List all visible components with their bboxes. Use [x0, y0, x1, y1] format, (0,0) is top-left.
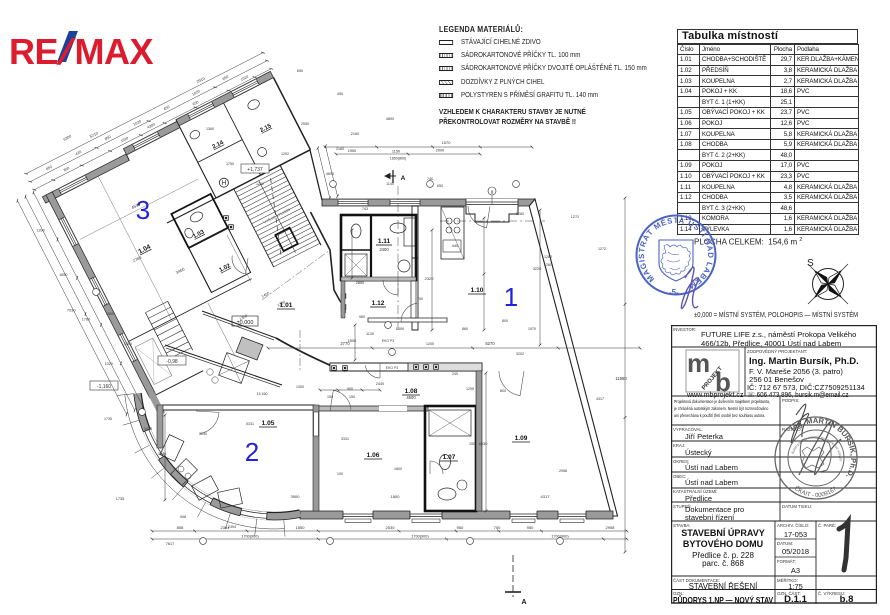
svg-text:2000: 2000	[436, 149, 444, 153]
svg-text:908: 908	[180, 515, 186, 519]
svg-text:a: a	[491, 190, 494, 196]
svg-text:1950: 1950	[348, 149, 356, 153]
svg-text:100: 100	[337, 472, 343, 476]
svg-text:1.06: 1.06	[367, 452, 380, 459]
svg-text:2784: 2784	[132, 254, 143, 263]
svg-text:1000: 1000	[396, 327, 404, 331]
svg-text:1280: 1280	[544, 255, 552, 259]
svg-text:3202: 3202	[516, 352, 524, 356]
svg-text:3240: 3240	[158, 452, 166, 456]
svg-text:-5-: -5-	[669, 288, 679, 297]
svg-text:2958: 2958	[559, 469, 567, 473]
svg-text:-1,160: -1,160	[97, 384, 111, 390]
svg-text:450: 450	[163, 105, 170, 111]
svg-text:1735: 1735	[116, 497, 124, 501]
svg-text:1390: 1390	[36, 229, 44, 233]
svg-text:A: A	[401, 175, 406, 182]
svg-text:2440: 2440	[376, 382, 384, 386]
svg-text:1500: 1500	[106, 312, 114, 316]
svg-text:2160: 2160	[351, 132, 359, 136]
svg-text:Ing. MARTIN BURSÍK, Ph.D.: Ing. MARTIN BURSÍK, Ph.D.	[789, 416, 858, 480]
svg-text:860: 860	[462, 327, 468, 331]
svg-text:650: 650	[297, 69, 303, 73]
svg-text:1272: 1272	[598, 247, 606, 251]
svg-text:420: 420	[75, 150, 82, 156]
svg-text:1130: 1130	[366, 332, 374, 336]
svg-text:EKO P3: EKO P3	[386, 366, 398, 370]
svg-text:1.10: 1.10	[471, 287, 484, 294]
svg-text:700: 700	[494, 525, 501, 530]
svg-text:2850: 2850	[356, 281, 364, 285]
svg-text:2958: 2958	[606, 525, 616, 530]
svg-text:445: 445	[452, 243, 459, 248]
svg-text:4890: 4890	[386, 117, 394, 121]
svg-text:650: 650	[222, 75, 229, 81]
svg-text:1850(800): 1850(800)	[390, 157, 406, 161]
svg-text:1970: 1970	[528, 327, 536, 331]
svg-text:-0,98: -0,98	[166, 359, 178, 365]
svg-text:850: 850	[104, 135, 111, 141]
svg-text:4530: 4530	[479, 441, 489, 446]
svg-text:ČKAIT - 0009167: ČKAIT - 0009167	[793, 485, 839, 499]
svg-text:7617: 7617	[166, 542, 174, 546]
svg-text:150: 150	[469, 442, 475, 446]
svg-text:858: 858	[177, 525, 184, 530]
svg-text:1020: 1020	[105, 362, 113, 366]
svg-text:150: 150	[327, 395, 333, 399]
svg-text:1.12: 1.12	[372, 300, 385, 307]
svg-text:650: 650	[437, 184, 443, 188]
svg-text:2.15: 2.15	[259, 123, 273, 134]
svg-text:1150: 1150	[392, 150, 400, 154]
svg-text:1700(900): 1700(900)	[411, 535, 429, 539]
svg-text:1800: 1800	[394, 467, 402, 471]
svg-text:1935: 1935	[144, 427, 152, 431]
svg-text:1300: 1300	[124, 342, 132, 346]
svg-text:3466: 3466	[175, 266, 186, 275]
svg-text:H: H	[221, 180, 226, 187]
svg-text:1020: 1020	[191, 89, 200, 96]
svg-text:240: 240	[452, 372, 458, 376]
svg-text:5270: 5270	[485, 341, 495, 346]
svg-text:2: 2	[245, 437, 259, 467]
svg-text:1550: 1550	[59, 273, 67, 277]
svg-text:800: 800	[500, 389, 506, 393]
svg-text:1.03: 1.03	[192, 229, 206, 240]
svg-text:650: 650	[45, 165, 52, 171]
svg-text:3900: 3900	[291, 494, 301, 499]
svg-text:1.04: 1.04	[137, 243, 152, 255]
svg-text:m: m	[687, 348, 710, 378]
svg-text:1020: 1020	[133, 119, 142, 126]
svg-text:1: 1	[504, 282, 518, 312]
svg-text:±0,000: ±0,000	[237, 320, 254, 326]
svg-text:900: 900	[347, 387, 353, 391]
svg-text:1550: 1550	[296, 525, 306, 530]
svg-text:5331: 5331	[246, 422, 254, 426]
svg-text:1.08: 1.08	[405, 388, 418, 395]
svg-text:1300: 1300	[296, 385, 304, 389]
svg-text:2160: 2160	[336, 147, 344, 151]
svg-text:5210: 5210	[89, 130, 100, 139]
svg-text:1360: 1360	[206, 127, 214, 131]
svg-text:1700(900): 1700(900)	[241, 535, 259, 539]
svg-text:950: 950	[457, 525, 464, 530]
svg-text:950: 950	[527, 525, 534, 530]
svg-text:4300: 4300	[146, 122, 155, 129]
svg-text:2910: 2910	[196, 75, 207, 84]
svg-text:1570: 1570	[442, 140, 452, 145]
svg-text:1260: 1260	[544, 263, 552, 267]
svg-text:1202: 1202	[256, 182, 264, 186]
svg-text:1272: 1272	[571, 215, 579, 219]
svg-text:4317: 4317	[541, 494, 551, 499]
svg-text:4500: 4500	[406, 395, 416, 400]
svg-text:2530: 2530	[386, 525, 396, 530]
svg-text:800: 800	[502, 319, 508, 323]
svg-text:2320: 2320	[425, 276, 435, 281]
svg-text:EKO P3: EKO P3	[382, 339, 394, 343]
svg-text:1.07: 1.07	[443, 454, 456, 461]
svg-text:2394: 2394	[228, 525, 236, 529]
svg-text:743: 743	[362, 207, 368, 211]
svg-text:2400: 2400	[379, 247, 389, 252]
svg-text:4317: 4317	[596, 397, 604, 401]
svg-text:6300: 6300	[63, 134, 72, 141]
svg-text:4690: 4690	[326, 172, 334, 176]
svg-text:1750: 1750	[226, 162, 234, 166]
svg-text:1800: 1800	[391, 494, 401, 499]
svg-text:150: 150	[349, 395, 355, 399]
svg-text:3240: 3240	[199, 432, 207, 436]
svg-text:1780: 1780	[82, 318, 90, 322]
svg-text:860: 860	[63, 166, 70, 172]
svg-text:1.11: 1.11	[378, 238, 391, 245]
svg-text:1.09: 1.09	[515, 435, 528, 442]
svg-text:650: 650	[192, 100, 199, 106]
svg-text:1.05: 1.05	[262, 420, 275, 427]
svg-text:450: 450	[337, 92, 343, 96]
svg-text:S: S	[807, 258, 814, 269]
svg-text:1205: 1205	[466, 387, 474, 391]
svg-text:A: A	[521, 599, 526, 606]
svg-text:11950: 11950	[615, 376, 627, 381]
svg-text:13.160: 13.160	[257, 392, 268, 396]
svg-text:7030: 7030	[67, 307, 77, 312]
svg-text:2050: 2050	[301, 122, 309, 126]
svg-text:3331: 3331	[341, 437, 349, 441]
svg-text:1205: 1205	[426, 342, 434, 346]
svg-text:750: 750	[417, 297, 423, 301]
svg-text:2.14: 2.14	[212, 140, 226, 151]
svg-text:1500: 1500	[348, 339, 356, 343]
svg-text:1.02: 1.02	[218, 263, 232, 274]
svg-text:980: 980	[359, 315, 365, 319]
svg-text:1735: 1735	[104, 417, 112, 421]
svg-text:1280: 1280	[516, 212, 524, 216]
svg-text:3220: 3220	[533, 267, 541, 271]
svg-text:1202: 1202	[281, 152, 289, 156]
svg-text:+1,737: +1,737	[247, 167, 263, 173]
